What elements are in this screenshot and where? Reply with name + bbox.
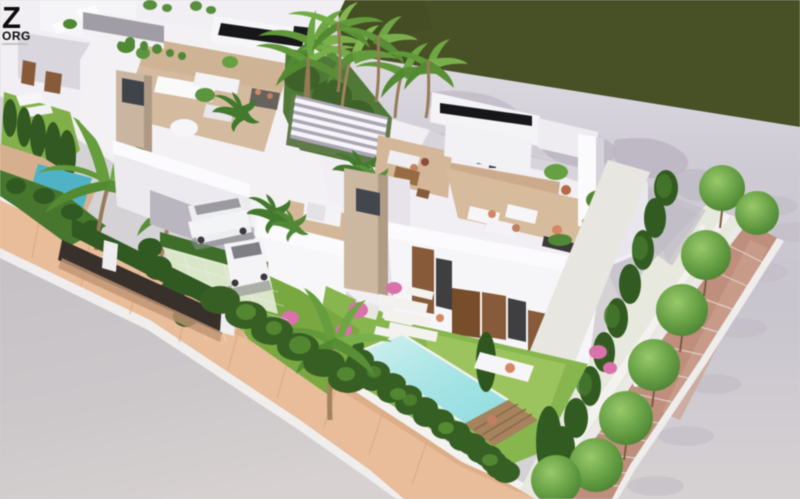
- svg-text:ORG: ORG: [2, 29, 31, 43]
